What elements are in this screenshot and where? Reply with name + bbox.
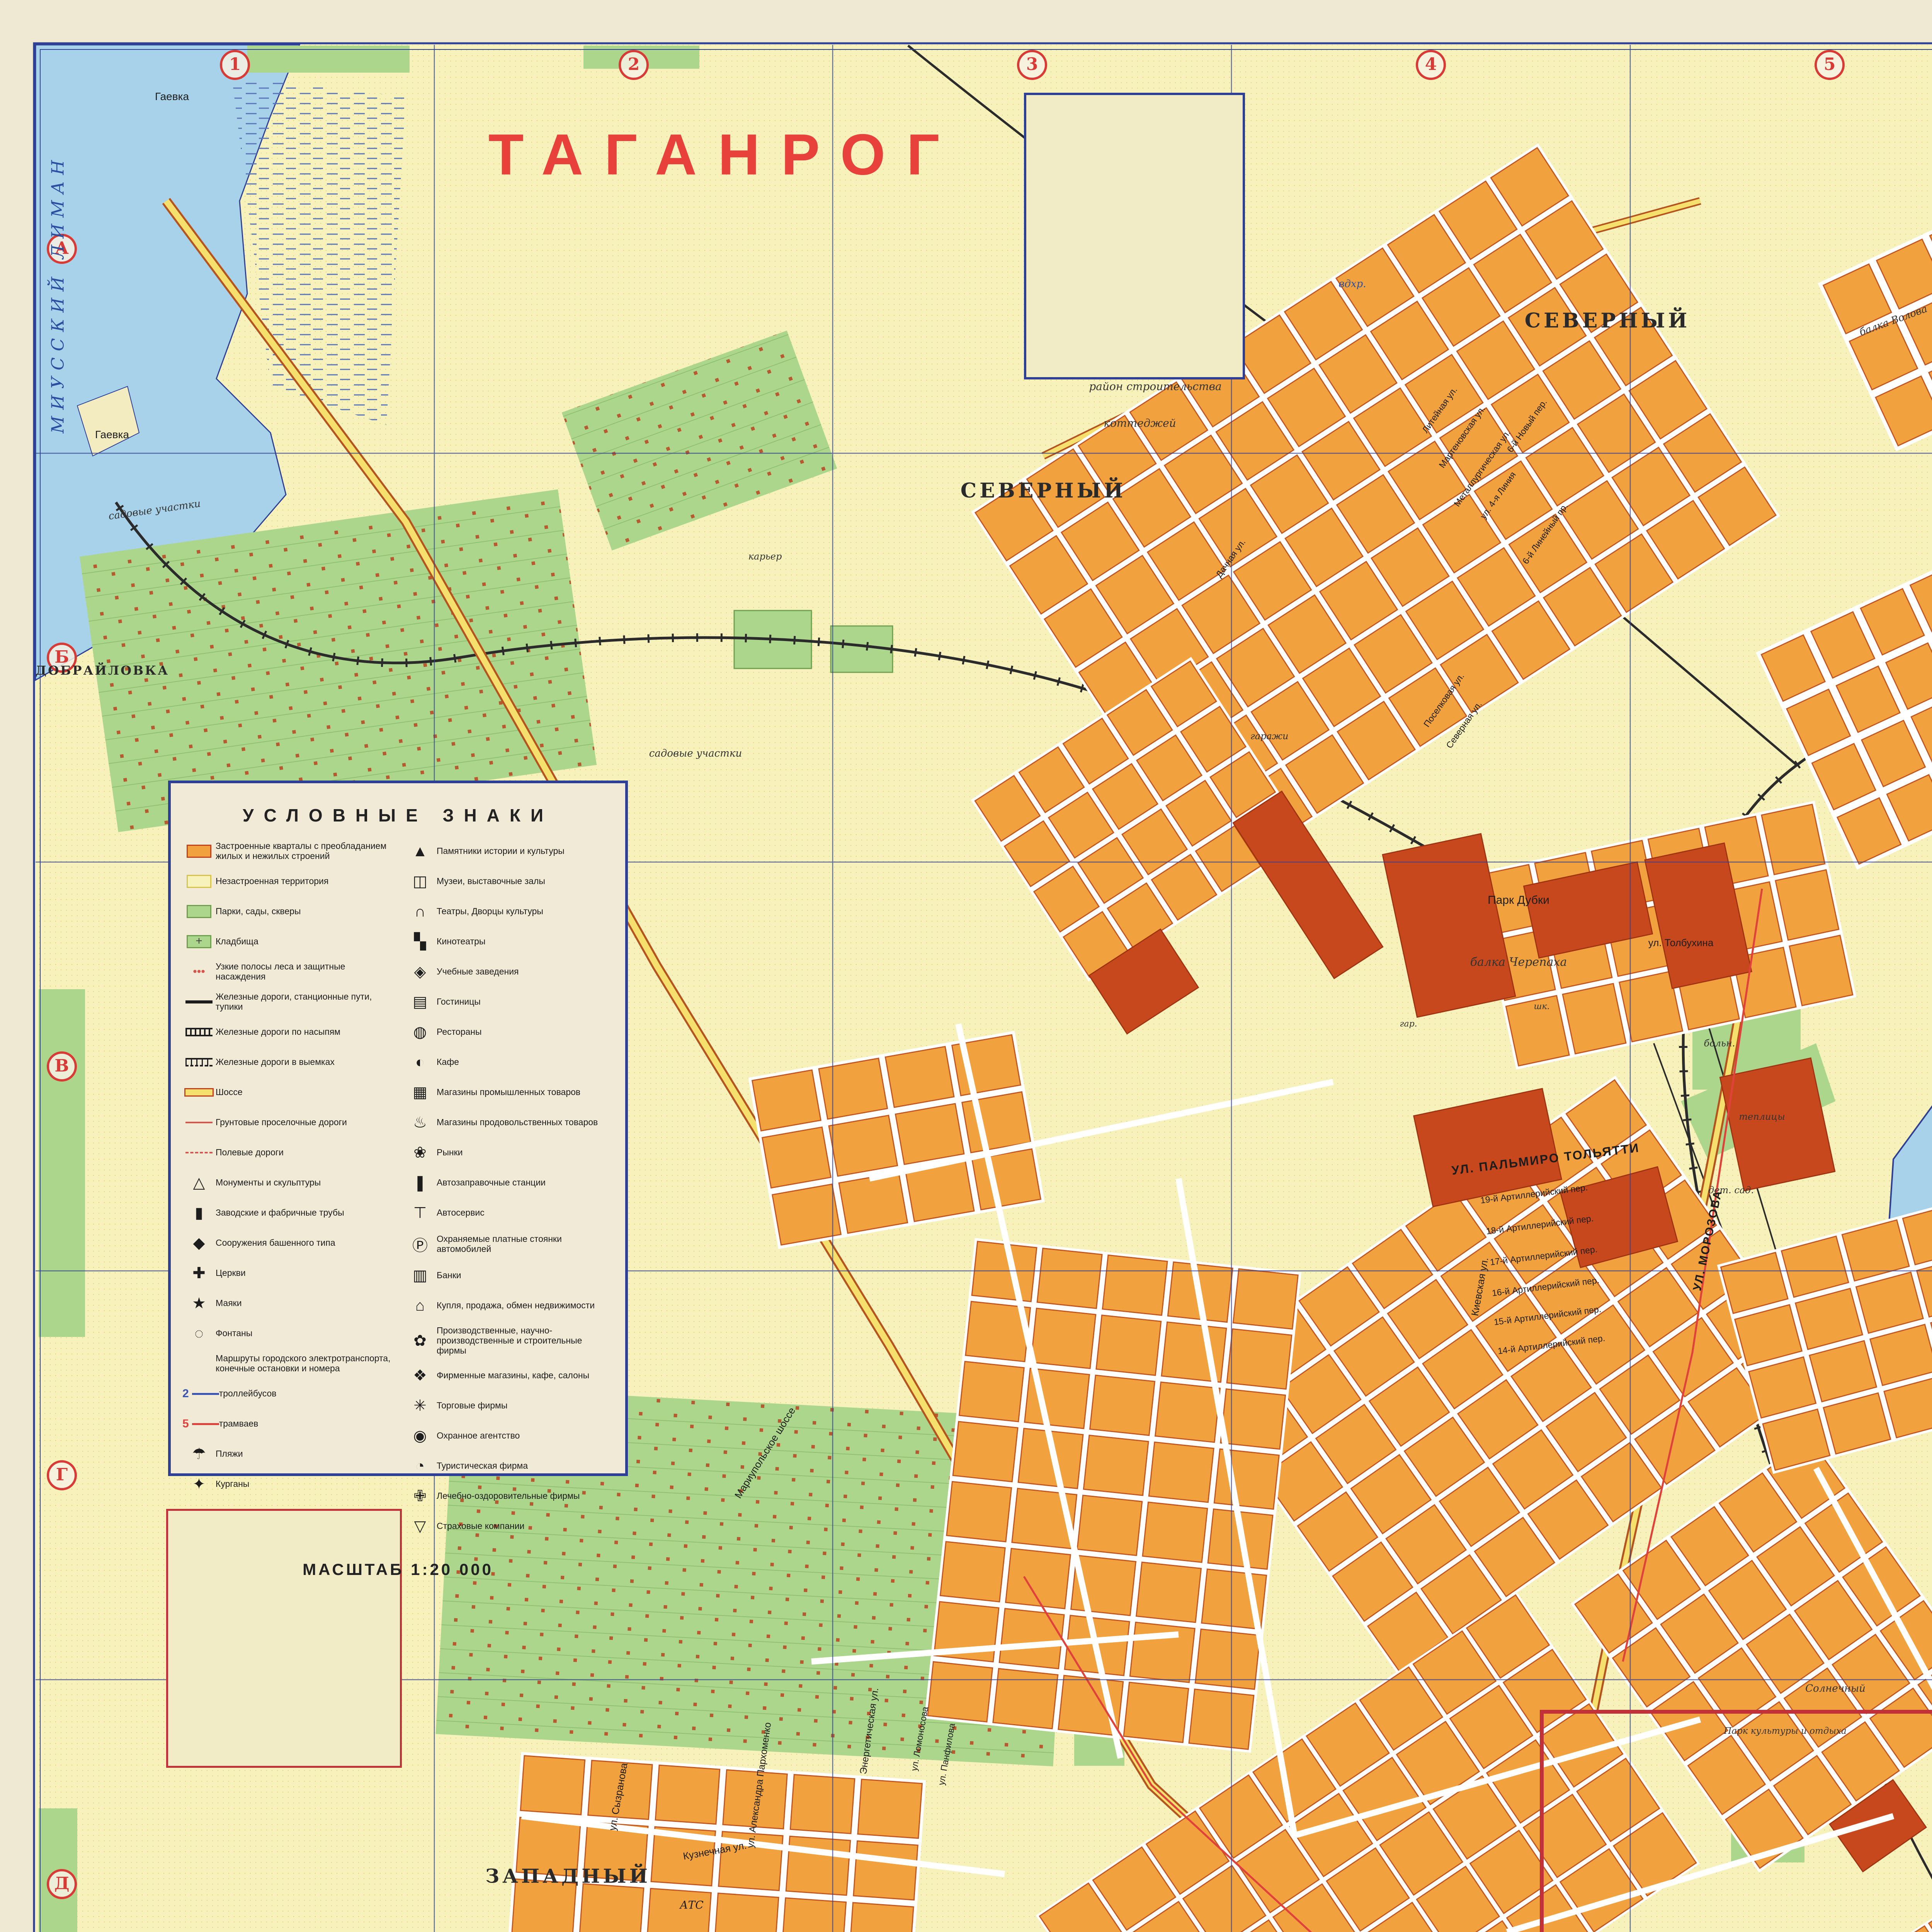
legend-item-label: Маршруты городского электротранспорта, к… — [216, 1354, 393, 1374]
legend-item-health: ✙Лечебно-оздоровительные фирмы — [403, 1486, 614, 1506]
legend-item-kurgan: ✦Курганы — [182, 1474, 393, 1494]
map-label: ул. Толбухина — [1648, 937, 1714, 949]
legend-item-label: Курганы — [216, 1479, 249, 1489]
security-icon: ◉ — [403, 1427, 437, 1445]
legend-item-label: Сооружения башенного типа — [216, 1238, 335, 1248]
legend-item-realty: ⌂Купля, продажа, обмен недвижимости — [403, 1296, 614, 1316]
legend-item-label: Маяки — [216, 1298, 242, 1308]
legend-item-label: Узкие полосы леса и защитные насаждения — [216, 962, 393, 982]
legend-item-firms: ✿Производственные, научно-производственн… — [403, 1326, 614, 1355]
cinema-icon: ▚ — [403, 933, 437, 951]
legend-item-label: Автозаправочные станции — [437, 1178, 546, 1188]
fuel-icon: ❚ — [403, 1174, 437, 1192]
legend-item-highway: Шоссе — [182, 1082, 393, 1102]
map-label: район строительства — [1089, 380, 1221, 393]
legend-item-fuel: ❚Автозаправочные станции — [403, 1173, 614, 1193]
chimney-icon: ▮ — [182, 1204, 216, 1222]
map-sheet: а 112233445566ААББВВГГДДЕЕ УСЛОВНЫЕ ЗНАК… — [0, 0, 1932, 1932]
legend-item-education: ◈Учебные заведения — [403, 962, 614, 982]
legend-item-tourist: ◔Туристическая фирма — [403, 1456, 614, 1476]
dirt-road-icon — [182, 1122, 216, 1123]
legend-item-territory: Незастроенная территория — [182, 871, 393, 891]
tourist-icon: ◔ — [403, 1458, 437, 1475]
map-label: Гаевка — [155, 90, 189, 103]
legend-item-label: Застроенные кварталы с преобладанием жил… — [216, 841, 393, 861]
car-service-icon: ⊤ — [403, 1204, 437, 1222]
map-title: ТАГАНРОГ — [488, 121, 961, 188]
grid-row-В-left: В — [47, 1051, 77, 1082]
legend-item-forest-strip: •••Узкие полосы леса и защитные насажден… — [182, 962, 393, 982]
field-road-icon — [182, 1152, 216, 1153]
legend-item-lighthouse: ★Маяки — [182, 1293, 393, 1313]
map-label: Гаевка — [95, 429, 129, 441]
map-label: карьер — [748, 551, 782, 562]
legend-item-label: Кладбища — [216, 937, 259, 947]
legend-item-trolleybus: 2троллейбусов — [182, 1384, 393, 1404]
legend-title: УСЛОВНЫЕ ЗНАКИ — [182, 805, 614, 826]
legend-item-label: трамваев — [219, 1419, 259, 1429]
tram-icon: 5 — [182, 1417, 219, 1430]
legend-item-label: Торговые фирмы — [437, 1401, 507, 1411]
legend-item-label: Музеи, выставочные залы — [437, 876, 545, 886]
park-icon — [182, 905, 216, 918]
cafe-icon: ◐ — [403, 1054, 437, 1071]
legend-item-label: Кафе — [437, 1057, 459, 1067]
blank-patch-top — [1024, 93, 1245, 379]
legend-item-label: Незастроенная территория — [216, 876, 328, 886]
monument-icon: △ — [182, 1174, 216, 1192]
legend-item-brand-shops: ❖Фирменные магазины, кафе, салоны — [403, 1366, 614, 1386]
map-label: АТС — [680, 1899, 703, 1912]
legend-item-tower: ◆Сооружения башенного типа — [182, 1233, 393, 1253]
beach-icon: ☂ — [182, 1445, 216, 1463]
legend-item-church: ✚Церкви — [182, 1263, 393, 1283]
legend-item-label: Страховые компании — [437, 1521, 524, 1531]
legend-item-label: Рестораны — [437, 1027, 482, 1037]
legend-item-park: Парки, сады, скверы — [182, 901, 393, 922]
legend-item-label: Церкви — [216, 1268, 246, 1278]
legend-item-label: троллейбусов — [219, 1389, 277, 1399]
map-label: шк. — [1534, 1002, 1550, 1012]
map-label: теплицы — [1739, 1111, 1785, 1122]
water-label-liman: МИУССКИЙ ЛИМАН — [48, 154, 68, 433]
trade-firms-icon: ✳ — [403, 1397, 437, 1415]
health-icon: ✙ — [403, 1487, 437, 1505]
legend-item-label: Туристическая фирма — [437, 1461, 528, 1471]
legend-item-market: ❀Рынки — [403, 1143, 614, 1163]
legend-columns: Застроенные кварталы с преобладанием жил… — [182, 841, 614, 1546]
legend-item-car-service: ⊤Автосервис — [403, 1203, 614, 1223]
map-label: гар. — [1400, 1019, 1417, 1029]
legend-item-industrial-goods: ▦Магазины промышленных товаров — [403, 1082, 614, 1102]
legend-item-trade-firms: ✳Торговые фирмы — [403, 1396, 614, 1416]
kurgan-icon: ✦ — [182, 1475, 216, 1493]
legend-item-label: Учебные заведения — [437, 967, 519, 977]
legend-item-museum: ◫Музеи, выставочные залы — [403, 871, 614, 891]
map-label: ДОБРАЙЛОВКА — [36, 663, 169, 678]
lighthouse-icon: ★ — [182, 1294, 216, 1312]
fountain-icon: ◌ — [182, 1325, 216, 1342]
railway-cut-icon — [182, 1058, 216, 1066]
grid-col-2-top: 2 — [619, 50, 649, 80]
map-label: Солнечный — [1805, 1683, 1866, 1694]
grid-row-Д-left: Д — [47, 1869, 77, 1899]
realty-icon: ⌂ — [403, 1297, 437, 1315]
grid-col-3-top: 3 — [1017, 50, 1047, 80]
highway-icon — [182, 1088, 216, 1097]
legend-item-label: Банки — [437, 1270, 461, 1281]
legend-item-label: Монументы и скульптуры — [216, 1178, 321, 1188]
legend-item-label: Охраняемые платные стоянки автомобилей — [437, 1234, 614, 1254]
legend-item-hotel: ▤Гостиницы — [403, 992, 614, 1012]
legend-item-label: Охранное агентство — [437, 1431, 520, 1441]
legend-item-monument-hist: ▲Памятники истории и культуры — [403, 841, 614, 861]
legend-item-label: Железные дороги в выемках — [216, 1057, 335, 1067]
church-icon: ✚ — [182, 1264, 216, 1282]
legend-item-label: Рынки — [437, 1148, 463, 1158]
hotel-icon: ▤ — [403, 993, 437, 1011]
firms-icon: ✿ — [403, 1332, 437, 1350]
legend-item-theatre: ∩Театры, Дворцы культуры — [403, 901, 614, 922]
legend-item-label: Железные дороги по насыпям — [216, 1027, 340, 1037]
legend-item-label: Железные дороги, станционные пути, тупик… — [216, 992, 393, 1012]
tower-icon: ◆ — [182, 1234, 216, 1252]
grid-col-4-top: 4 — [1416, 50, 1446, 80]
legend-item-label: Автосервис — [437, 1208, 485, 1218]
legend-item-bank: ▥Банки — [403, 1265, 614, 1286]
forest-strip-icon: ••• — [182, 965, 216, 978]
legend-item-insurance: ▽Страховые компании — [403, 1516, 614, 1536]
legend-item-label: Фирменные магазины, кафе, салоны — [437, 1371, 589, 1381]
map-label: садовые участки — [649, 748, 742, 759]
insurance-icon: ▽ — [403, 1517, 437, 1535]
legend-item-label: Магазины промышленных товаров — [437, 1087, 580, 1097]
education-icon: ◈ — [403, 963, 437, 981]
blank-patch-left — [166, 1509, 402, 1768]
legend-item-fountain: ◌Фонтаны — [182, 1323, 393, 1344]
legend-column-left: Застроенные кварталы с преобладанием жил… — [182, 841, 393, 1546]
bank-icon: ▥ — [403, 1267, 437, 1284]
legend-item-chimney: ▮Заводские и фабричные трубы — [182, 1203, 393, 1223]
legend-item-label: Кинотеатры — [437, 937, 485, 947]
legend-item-cemetery: Кладбища — [182, 932, 393, 952]
industrial-goods-icon: ▦ — [403, 1083, 437, 1101]
map-label: Парк культуры и отдыха — [1724, 1726, 1846, 1736]
legend-item-railway-emb: Железные дороги по насыпям — [182, 1022, 393, 1042]
map-label: СЕВЕРНЫЙ — [961, 479, 1126, 503]
legend-column-right: ▲Памятники истории и культуры◫Музеи, выс… — [403, 841, 614, 1546]
legend-item-label: Грунтовые проселочные дороги — [216, 1117, 347, 1128]
legend-item-parking: ⓅОхраняемые платные стоянки автомобилей — [403, 1233, 614, 1255]
legend-item-tram: 5трамваев — [182, 1414, 393, 1434]
monument-hist-icon: ▲ — [403, 843, 437, 860]
legend-item-field-road: Полевые дороги — [182, 1143, 393, 1163]
map-label: СЕВЕРНЫЙ — [1525, 309, 1690, 333]
quarters-icon — [182, 845, 216, 858]
grid-col-5-top: 5 — [1815, 50, 1845, 80]
legend-item-label: Театры, Дворцы культуры — [437, 906, 543, 917]
legend-box: УСЛОВНЫЕ ЗНАКИ Застроенные кварталы с пр… — [168, 781, 628, 1476]
territory-icon — [182, 875, 216, 888]
legend-item-label: Производственные, научно-производственны… — [437, 1326, 614, 1355]
legend-item-railway-cut: Железные дороги в выемках — [182, 1052, 393, 1072]
legend-item-quarters: Застроенные кварталы с преобладанием жил… — [182, 841, 393, 861]
map-label: гаражи — [1250, 731, 1289, 742]
map-label: ЗАПАДНЫЙ — [485, 1865, 651, 1888]
museum-icon: ◫ — [403, 872, 437, 890]
legend-item-label: Магазины продовольственных товаров — [437, 1117, 598, 1128]
legend-item-beach: ☂Пляжи — [182, 1444, 393, 1464]
legend-item-cafe: ◐Кафе — [403, 1052, 614, 1072]
trolleybus-icon: 2 — [182, 1387, 219, 1400]
legend-item-railway: Железные дороги, станционные пути, тупик… — [182, 992, 393, 1012]
parking-icon: Ⓟ — [403, 1233, 437, 1255]
railway-icon — [182, 1000, 216, 1003]
legend-item-label: Шоссе — [216, 1087, 243, 1097]
legend-item-label: Пляжи — [216, 1449, 243, 1459]
legend-item-cinema: ▚Кинотеатры — [403, 932, 614, 952]
legend-item-label: Лечебно-оздоровительные фирмы — [437, 1491, 580, 1501]
map-label: Парк Дубки — [1488, 894, 1549, 907]
railway-emb-icon — [182, 1028, 216, 1036]
legend-item-label: Фонтаны — [216, 1328, 252, 1338]
map-label: балка Черепаха — [1470, 956, 1567, 969]
market-icon: ❀ — [403, 1144, 437, 1162]
legend-item-label: Гостиницы — [437, 997, 481, 1007]
brand-shops-icon: ❖ — [403, 1367, 437, 1384]
grid-col-1-top: 1 — [220, 50, 250, 80]
legend-item-label: Полевые дороги — [216, 1148, 284, 1158]
legend-item-food-goods: ♨Магазины продовольственных товаров — [403, 1112, 614, 1133]
map-scale: МАСШТАБ 1:20 000 — [182, 1560, 614, 1579]
grid-row-Г-left: Г — [47, 1460, 77, 1490]
theatre-icon: ∩ — [403, 903, 437, 920]
legend-item-dirt-road: Грунтовые проселочные дороги — [182, 1112, 393, 1133]
district-block-grid — [924, 1238, 1301, 1753]
legend-item-label: Купля, продажа, обмен недвижимости — [437, 1301, 595, 1311]
restaurant-icon: ◍ — [403, 1023, 437, 1041]
legend-item-label: Заводские и фабричные трубы — [216, 1208, 344, 1218]
map-label: вдхр. — [1338, 278, 1366, 290]
legend-item-monument: △Монументы и скульптуры — [182, 1173, 393, 1193]
legend-item-label: Парки, сады, скверы — [216, 906, 301, 917]
legend-item-transport-header: Маршруты городского электротранспорта, к… — [182, 1354, 393, 1374]
legend-item-restaurant: ◍Рестораны — [403, 1022, 614, 1042]
map-label: больн. — [1704, 1038, 1735, 1049]
cemetery-icon — [182, 935, 216, 948]
food-goods-icon: ♨ — [403, 1114, 437, 1131]
legend-item-label: Памятники истории и культуры — [437, 846, 565, 856]
legend-item-security: ◉Охранное агентство — [403, 1426, 614, 1446]
map-label: коттеджей — [1104, 417, 1176, 430]
